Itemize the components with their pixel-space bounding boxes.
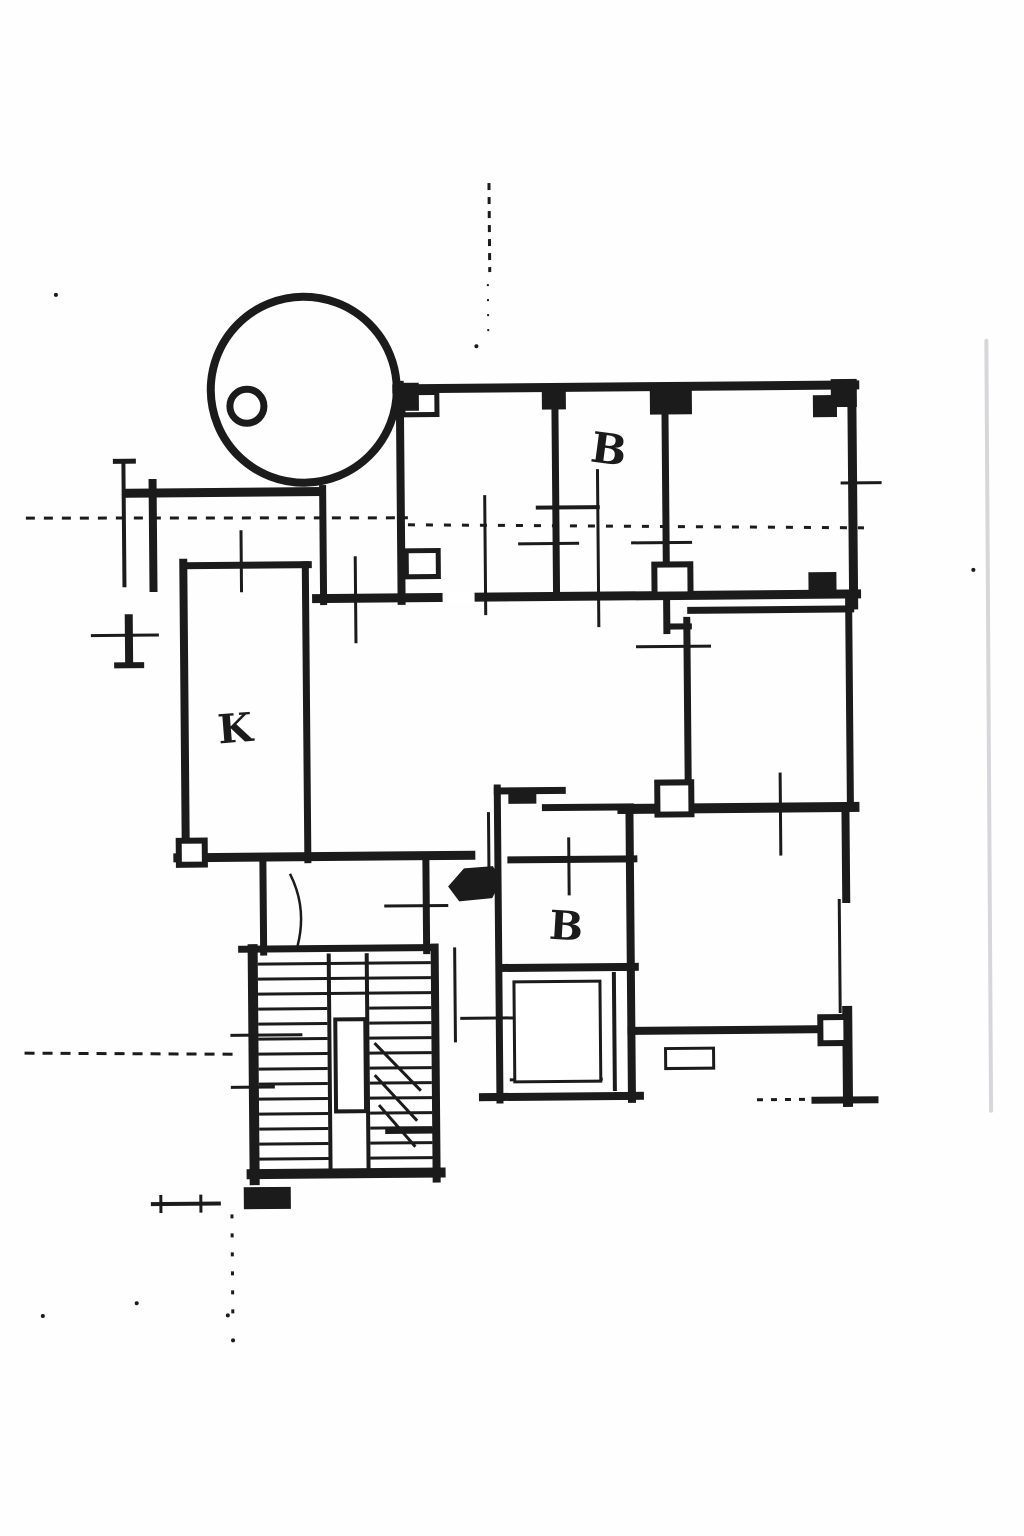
stair-foot-block <box>244 1187 291 1209</box>
stair-tread <box>259 1069 328 1070</box>
stair-tread <box>258 1024 327 1025</box>
stair-tread <box>259 1084 328 1085</box>
stair-tread <box>370 1083 432 1084</box>
scanned-floorplan-page: BKB <box>0 0 1024 1536</box>
wall-junction-block <box>542 385 566 409</box>
stair-tread <box>258 1009 327 1010</box>
lower-room-wall-bottom <box>631 1029 822 1031</box>
vestibule-wall <box>323 489 324 602</box>
bath-wall-left <box>497 788 500 1100</box>
paper-speck <box>54 293 58 297</box>
wall-notch <box>406 551 438 577</box>
tick-mark <box>230 1035 302 1036</box>
wall-junction-block <box>508 790 536 804</box>
wall-pillar <box>654 564 690 594</box>
paper-speck <box>231 1338 235 1342</box>
corridor-wall <box>317 594 857 599</box>
tick-mark <box>839 899 840 1013</box>
mid-room-wall-left <box>687 620 688 790</box>
floor-plan-layer: BKB <box>17 179 995 1344</box>
stair-tread <box>370 1098 432 1099</box>
tick-mark <box>241 530 242 592</box>
lower-room-wall-left <box>629 809 632 1099</box>
hall-wall <box>426 859 427 951</box>
scanner-artifact-line <box>984 341 993 1111</box>
bath-inner-wall <box>614 974 615 1089</box>
bath-wall-divider <box>511 859 634 860</box>
mid-room-wall-right <box>849 597 851 807</box>
room-label-b-upper: B <box>588 423 630 476</box>
door-opening <box>443 591 475 602</box>
left-stub-wall <box>153 483 154 588</box>
stair-tread <box>370 1053 432 1054</box>
room-label-b-lower: B <box>548 902 585 951</box>
kitchen-wall-right <box>305 565 308 860</box>
terrace-cap <box>815 1100 875 1101</box>
stair-tread <box>258 1039 327 1040</box>
tick-mark <box>518 543 579 544</box>
tick-mark <box>597 469 598 627</box>
kitchen-wall-left <box>183 563 186 861</box>
stair-tread <box>259 1114 328 1115</box>
stair-wall-left <box>253 949 255 1180</box>
paper-speck <box>474 344 478 348</box>
tick-mark <box>631 542 692 543</box>
scan-dash-horizontal <box>25 1051 241 1056</box>
scan-dash-horizontal <box>26 515 408 521</box>
shower-inner-room <box>514 981 601 1082</box>
wall-junction-block <box>813 395 837 417</box>
paper-speck <box>41 1314 45 1318</box>
stair-tread <box>259 1054 328 1055</box>
stair-tread <box>370 1158 432 1159</box>
floor-plan-drawing: BKB <box>0 0 1024 1536</box>
tick-mark <box>636 646 711 647</box>
stair-wall-bottom <box>252 1173 441 1175</box>
door-swing-arc <box>290 874 301 946</box>
sill-marker <box>666 1048 714 1068</box>
tick-mark <box>536 507 600 508</box>
stair-core <box>335 1019 366 1111</box>
bath-wall-divider <box>502 967 635 968</box>
paper-speck <box>135 1301 139 1305</box>
stair-tread <box>259 1129 328 1130</box>
stair-tread <box>258 963 431 965</box>
wall-junction-block <box>808 572 836 596</box>
wall-pillar <box>179 841 205 865</box>
stair-tread <box>370 1113 432 1114</box>
tick-mark <box>569 837 570 895</box>
wall-junction-block <box>393 383 419 411</box>
paper-speck <box>971 568 975 572</box>
stair-tread <box>369 1038 431 1039</box>
kitchen-wall-top <box>183 565 308 566</box>
hall-wall <box>263 860 264 952</box>
stair-wall-top <box>242 948 434 950</box>
stair-tread <box>258 993 431 995</box>
stair-tread <box>369 1008 431 1009</box>
wall-divider-1 <box>555 391 557 597</box>
stair-tread <box>258 978 431 980</box>
stair-tread <box>259 1144 328 1145</box>
wall-junction-block <box>650 388 692 414</box>
stair-tread <box>259 1159 328 1160</box>
stair-tread <box>329 954 331 1170</box>
tick-mark <box>384 905 448 906</box>
stair-wall-right <box>435 948 437 1179</box>
room-label-k: K <box>216 704 256 754</box>
stair-tread <box>259 1099 328 1100</box>
paper-speck <box>226 1313 230 1317</box>
axis-dash-vertical-top <box>489 183 490 272</box>
axis-dash-vertical-bottom <box>232 1214 233 1324</box>
entry-door-mark <box>448 866 501 901</box>
balcony-column <box>230 389 264 423</box>
bath-wall-bottom <box>483 1096 640 1097</box>
left-stub-wall-thin <box>123 461 124 585</box>
tick-mark <box>780 773 781 856</box>
outer-wall-top <box>397 385 855 389</box>
mid-room-wall-top <box>691 609 851 610</box>
tick-mark <box>455 947 456 1042</box>
outer-wall-right-upper <box>852 385 854 605</box>
lower-room-wall-right <box>845 809 846 899</box>
stair-tread <box>369 1023 431 1024</box>
stair-tread <box>370 1143 432 1144</box>
scan-dash-horizontal <box>408 521 864 532</box>
wall-pillar <box>657 782 691 814</box>
wall-pillar <box>820 1017 846 1043</box>
bath-wall-top-step <box>545 807 630 808</box>
